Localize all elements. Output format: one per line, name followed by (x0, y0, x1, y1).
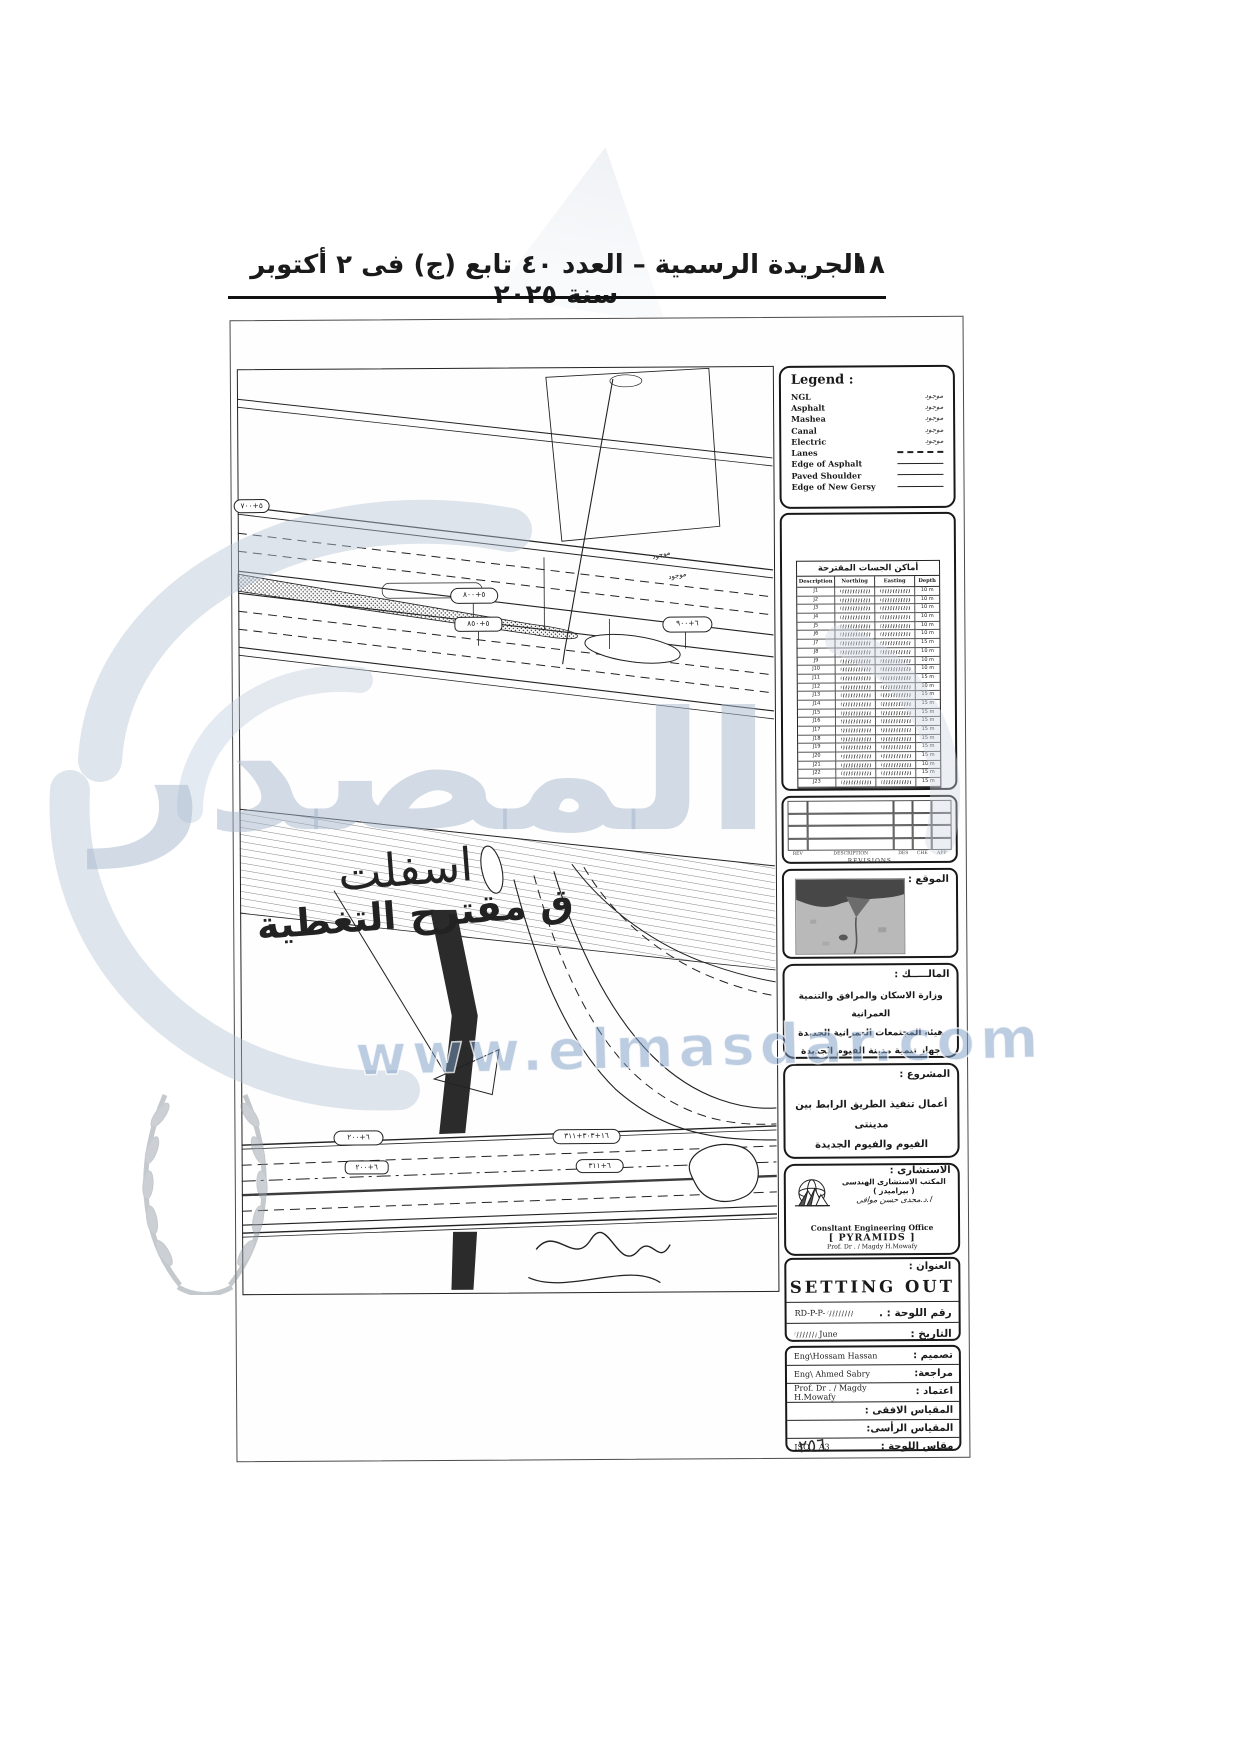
legend-item: Edge of New Gersy (792, 480, 944, 492)
boring-depth: 15 m (916, 717, 940, 726)
boring-depth: 15 m (916, 743, 940, 752)
consultant-principal-en: Prof. Dr . / Magdy H.Mowafy (786, 1243, 958, 1251)
legend-item: Electric موجود (791, 435, 943, 447)
gazette-header-title: الجريدة الرسمية – العدد ٤٠ تابع (ج) فى ٢… (228, 250, 884, 310)
legend-handwritten-note: موجود (924, 437, 944, 445)
boring-northing (836, 657, 876, 666)
boring-id: J22 (798, 770, 836, 779)
boring-id: J6 (797, 631, 835, 640)
boring-easting (876, 778, 916, 787)
legend-item-label: Edge of New Gersy (792, 481, 892, 492)
legend-line-sample (897, 451, 943, 453)
boring-id: J13 (798, 692, 836, 701)
col-des: DES (894, 850, 913, 858)
boring-depth: 10 m (915, 596, 939, 605)
boring-depth: 10 m (915, 587, 939, 596)
boring-depth: 10 m (916, 682, 940, 691)
col-rev: REV (788, 851, 808, 859)
consultant-english: Consltant Engineering Office [ PYRAMIDS … (786, 1223, 958, 1251)
boring-easting (876, 683, 916, 692)
boring-easting (875, 587, 915, 596)
legend-item-symbol: موجود (891, 403, 943, 411)
boring-northing (835, 605, 875, 614)
boring-depth: 15 m (916, 700, 940, 709)
boring-depth: 10 m (916, 665, 940, 674)
col-app: APP (932, 850, 952, 858)
project-line: الفيوم والفيوم الجديدة (786, 1135, 958, 1156)
legend-item: Paved Shoulder (791, 469, 943, 481)
boring-id: J7 (797, 640, 835, 649)
station-bubble: ٦+٩٠٠ (662, 616, 712, 632)
boring-northing (835, 631, 875, 640)
borings-table-header: Description Northing Easting Depth (797, 576, 939, 588)
signature-value: Eng\ Ahmed Sabry (787, 1369, 908, 1379)
legend-handwritten-note: موجود (924, 392, 944, 400)
consultant-arabic: المكتب الاستشارى الهندسى ( بيراميدز ) ا.… (836, 1177, 952, 1205)
boring-id: J5 (797, 622, 835, 631)
boring-depth: 10 m (916, 761, 940, 770)
boring-northing (835, 587, 875, 596)
header-rule (228, 296, 886, 299)
boring-easting (875, 604, 915, 613)
boring-depth: 15 m (916, 674, 940, 683)
station-bubble: ٥+٨٥٠ (454, 617, 502, 632)
owner-lines: وزارة الاسكان والمرافق والتنمية العمراني… (785, 987, 957, 1062)
boring-id: J2 (797, 596, 835, 605)
boring-northing (836, 709, 876, 718)
boring-id: J23 (798, 779, 836, 788)
boring-id: J16 (798, 718, 836, 727)
station-bubble: ٥+٨٠٠ (450, 588, 498, 604)
title-block: العنوان : SETTING OUT رقم اللوحة : . RD-… (784, 1257, 961, 1342)
boring-id: J20 (798, 753, 836, 762)
boring-depth: 15 m (916, 709, 940, 718)
signature-label: تصميم : (907, 1350, 959, 1361)
page-number: ١٨ (846, 250, 892, 280)
legend-item: Lanes (791, 446, 943, 458)
boring-easting (875, 613, 915, 622)
boring-northing (835, 622, 875, 631)
boring-id: J4 (797, 614, 835, 623)
legend-item-label: Edge of Asphalt (791, 459, 891, 470)
boring-easting (876, 709, 916, 718)
consultant-label: الاستشارى : (890, 1165, 951, 1176)
col-description: Description (797, 577, 835, 588)
drawing-number-row: رقم اللوحة : . RD-P-P- (787, 1301, 959, 1324)
legend-item: NGL موجود (791, 390, 943, 402)
gazette-page: الجريدة الرسمية – العدد ٤٠ تابع (ج) فى ٢… (0, 0, 1240, 1755)
project-box: المشروع : أعمال تنفيذ الطريق الرابط بين … (783, 1063, 960, 1159)
owner-line: هيئة المجتمعات العمرانية الجديدة (785, 1024, 957, 1043)
col-depth: Depth (915, 576, 939, 587)
boring-depth: 15 m (916, 735, 940, 744)
boring-id: J14 (798, 700, 836, 709)
legend-item-label: Lanes (791, 447, 891, 458)
owner-label: المالـــــك : (894, 969, 949, 980)
signature-row: مراجعة: Eng\ Ahmed Sabry (787, 1365, 959, 1384)
boring-easting (876, 743, 916, 752)
boring-id: J12 (798, 683, 836, 692)
drawing-sheet: ٥+٧٠٠ ٥+٨٠٠ ٥+٨٥٠ ٦+٩٠٠ ٦+٢٠٠ ٦+٢٠٠ ١٦+٣… (230, 316, 971, 1462)
legend-handwritten-note: موجود (924, 414, 944, 422)
boring-easting (876, 700, 916, 709)
boring-northing (836, 752, 876, 761)
date-label: التاريخ : (903, 1327, 958, 1339)
legend-item-symbol: موجود (891, 425, 943, 433)
boring-id: J19 (798, 744, 836, 753)
boring-northing (836, 674, 876, 683)
boring-northing (836, 683, 876, 692)
title-label: العنوان : (909, 1261, 952, 1272)
boring-id: J11 (798, 674, 836, 683)
boring-depth: 15 m (915, 639, 939, 648)
boring-northing (836, 692, 876, 701)
boring-easting (876, 735, 916, 744)
boring-depth: 10 m (915, 622, 939, 631)
boring-northing (836, 665, 876, 674)
col-che: CHE (913, 850, 932, 858)
boring-northing (835, 596, 875, 605)
location-box: الموقع : (782, 868, 959, 959)
consultant-box: الاستشارى : المكتب الاستشارى الهندسى (784, 1163, 961, 1256)
station-bubble: ١٦+٣٠٣+٣١١ (552, 1129, 620, 1144)
legend-item-symbol: موجود (891, 392, 943, 400)
legend-title: Legend : (791, 372, 943, 388)
signature-label: مراجعة: (908, 1368, 959, 1379)
boring-easting (876, 752, 916, 761)
legend-line-sample (897, 463, 943, 464)
boring-northing (836, 770, 876, 779)
legend-item-label: Electric (791, 436, 891, 447)
station-bubble: ٦+٣١١ (576, 1159, 624, 1173)
boring-depth: 15 m (916, 769, 940, 778)
consultant-office-ar: المكتب الاستشارى الهندسى (836, 1177, 952, 1187)
signature-label: اعتماد : (910, 1386, 959, 1397)
boring-depth: 10 m (915, 613, 939, 622)
owner-line: جهاز تنمية مدينة الفيوم الجديدة (785, 1042, 957, 1061)
legend-line-sample (897, 474, 943, 475)
boring-id: J8 (798, 648, 836, 657)
boring-easting (876, 665, 916, 674)
revisions-box: REV DESCRIPTION DES CHE APP REVISIONS (781, 795, 957, 864)
pyramids-logo-icon (792, 1176, 832, 1216)
borings-table: أماكن الجسات المقترحة Description Northi… (796, 560, 941, 789)
boring-easting (876, 674, 916, 683)
legend-handwritten-note: موجود (924, 403, 944, 411)
col-easting: Easting (875, 576, 915, 587)
boring-northing (836, 648, 876, 657)
boring-easting (876, 648, 916, 657)
project-line: أعمال تنفيذ الطريق الرابط بين مدينتى (785, 1095, 957, 1136)
boring-depth: 15 m (916, 752, 940, 761)
boring-depth: 10 m (915, 630, 939, 639)
legend-item-symbol (892, 485, 944, 486)
location-label: الموقع : (908, 874, 949, 885)
boring-easting (876, 717, 916, 726)
drawing-number-label: رقم اللوحة : . (872, 1306, 959, 1319)
legend-item: Canal موجود (791, 424, 943, 436)
revisions-caption: REVISIONS (788, 858, 952, 865)
boring-northing (836, 700, 876, 709)
boring-depth: 15 m (916, 726, 940, 735)
legend-item: Mashea موجود (791, 412, 943, 424)
handwritten-page-mark: ٢٥٦ (798, 1434, 826, 1457)
legend-item-symbol (891, 474, 943, 475)
legend-item-label: NGL (791, 391, 891, 402)
station-bubble: ٦+٢٠٠ (345, 1160, 389, 1174)
signature-label: المقياس الافقى : (859, 1404, 959, 1416)
boring-easting (875, 631, 915, 640)
borings-table-body: J1 10 m J2 10 m (797, 587, 940, 788)
boring-depth: 10 m (916, 648, 940, 657)
signature-label: مقاس اللوحة : (875, 1441, 960, 1453)
signature-row: اعتماد : Prof. Dr . / Magdy H.Mowafy (787, 1383, 959, 1402)
revisions-grid (787, 800, 951, 851)
owner-line: وزارة الاسكان والمرافق والتنمية العمراني… (785, 987, 957, 1025)
date-row: التاريخ : June (787, 1322, 959, 1345)
project-label: المشروع : (899, 1069, 950, 1080)
signature-value: Prof. Dr . / Magdy H.Mowafy (787, 1383, 910, 1402)
boring-northing (836, 761, 876, 770)
legend-handwritten-note: موجود (924, 425, 944, 433)
boring-easting (876, 770, 916, 779)
boring-id: J17 (798, 727, 836, 736)
boring-northing (836, 744, 876, 753)
boring-easting (875, 596, 915, 605)
satellite-image (796, 879, 904, 954)
boring-id: J10 (798, 666, 836, 675)
table-row: J23 15 m (798, 778, 940, 788)
boring-easting (875, 622, 915, 631)
boring-depth: 10 m (915, 604, 939, 613)
signature-value: Eng\Hossam Hassan (787, 1351, 907, 1361)
legend-list: NGL موجود Asphalt موجود (791, 390, 944, 493)
legend-item: Asphalt موجود (791, 401, 943, 413)
boring-id: J3 (797, 605, 835, 614)
signature-label: المقياس الرأسى: (860, 1423, 959, 1435)
boring-depth: 15 m (916, 778, 940, 787)
legend-item-symbol (891, 451, 943, 453)
borings-table-title: أماكن الجسات المقترحة (797, 561, 939, 577)
project-lines: أعمال تنفيذ الطريق الرابط بين مدينتى الف… (785, 1095, 957, 1156)
owner-box: المالـــــك : وزارة الاسكان والمرافق وال… (782, 963, 959, 1059)
legend-item-label: Asphalt (791, 402, 891, 413)
boring-northing (835, 613, 875, 622)
legend-item-symbol (891, 463, 943, 464)
setting-out-title: SETTING OUT (786, 1277, 958, 1297)
legend-item: Edge of Asphalt (791, 458, 943, 470)
boring-northing (836, 735, 876, 744)
boring-northing (836, 726, 876, 735)
signature-row: تصميم : Eng\Hossam Hassan (787, 1347, 959, 1366)
legend-item-label: Mashea (791, 413, 891, 424)
boring-easting (876, 726, 916, 735)
boring-easting (876, 691, 916, 700)
drawing-number-value: RD-P-P- (787, 1308, 872, 1318)
signature-row: المقياس الافقى : (787, 1401, 959, 1420)
date-value: June (787, 1329, 904, 1339)
boring-id: J1 (797, 588, 835, 597)
legend-item-symbol: موجود (891, 414, 943, 422)
boring-easting (876, 761, 916, 770)
drawing-frame (237, 366, 780, 1295)
boring-northing (835, 639, 875, 648)
legend-box: Legend : NGL موجود Asphalt مو (779, 365, 956, 509)
borings-box: أماكن الجسات المقترحة Description Northi… (780, 512, 958, 791)
station-bubble: ٦+٢٠٠ (333, 1130, 383, 1145)
boring-easting (875, 639, 915, 648)
boring-depth: 15 m (916, 691, 940, 700)
legend-line-sample (898, 485, 944, 486)
boring-id: J18 (798, 735, 836, 744)
boring-id: J21 (798, 761, 836, 770)
boring-northing (836, 718, 876, 727)
legend-item-symbol: موجود (891, 437, 943, 445)
boring-id: J9 (798, 657, 836, 666)
boring-id: J15 (798, 709, 836, 718)
station-bubble: ٥+٧٠٠ (234, 499, 270, 513)
boring-depth: 10 m (916, 656, 940, 665)
legend-item-label: Paved Shoulder (791, 470, 891, 481)
legend-item-label: Canal (791, 425, 891, 436)
consultant-principal-ar: ا.د.مجدى حسن موافى (835, 1195, 952, 1205)
col-northing: Northing (835, 576, 875, 587)
boring-northing (836, 778, 876, 787)
boring-easting (876, 657, 916, 666)
